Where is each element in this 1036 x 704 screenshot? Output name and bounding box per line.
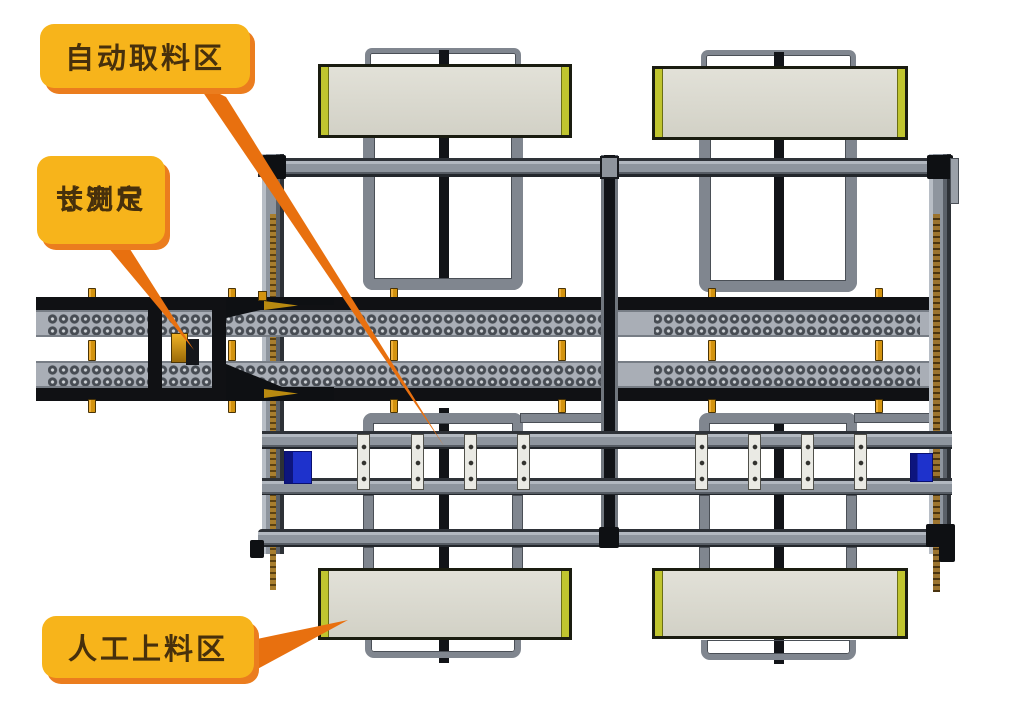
dimension-sensor-head: [186, 339, 199, 365]
belt-pin: [88, 340, 96, 361]
bottom-bracket-left: [365, 638, 521, 658]
top-window-frame-right: [699, 132, 857, 292]
top-panel-right: [652, 66, 908, 140]
panel-edge: [561, 571, 569, 637]
rail-cap: [262, 155, 286, 179]
measure-frame-bar: [212, 297, 226, 401]
callout-auto-pick-label: 自动取料区: [65, 35, 225, 77]
lower-tube: [846, 495, 857, 530]
gripper-frame-right: [699, 413, 857, 432]
belt-pin: [708, 399, 716, 413]
panel-tube: [363, 547, 374, 570]
belt-plain-segment: [36, 363, 48, 386]
belt-pin: [875, 399, 883, 413]
panel-tube: [512, 547, 523, 570]
rail-cap: [599, 527, 619, 548]
gripper-plate: [854, 434, 867, 490]
belt-plain-segment: [36, 312, 48, 335]
belt-pin: [228, 399, 236, 413]
bottom-bracket-right: [701, 640, 856, 660]
gripper-frame-right-ext: [854, 413, 931, 423]
belt-pin: [390, 340, 398, 361]
lower-tube: [699, 495, 710, 530]
belt-frame-top: [36, 297, 933, 310]
belt-pin: [228, 340, 236, 361]
belt-pin: [558, 340, 566, 361]
gripper-plate: [411, 434, 424, 490]
machine-diagram: 自动取料区 长宽尺 寸测定 人工上料区: [0, 0, 1036, 704]
lower-tube: [363, 495, 374, 530]
panel-edge: [897, 571, 905, 636]
top-panel-left: [318, 64, 572, 138]
callout-auto-pick-area: 自动取料区: [40, 24, 250, 88]
panel-edge: [321, 571, 329, 637]
conveyor-belt: [36, 288, 933, 414]
gripper-plate: [748, 434, 761, 490]
blue-actuator-left: [284, 451, 312, 484]
belt-plain-segment: [616, 312, 654, 335]
rail-cap-gold: [258, 291, 267, 301]
callout-manual-load-area: 人工上料区: [42, 616, 254, 678]
gripper-plate: [695, 434, 708, 490]
gripper-plate: [517, 434, 530, 490]
callout-manual-load-label: 人工上料区: [68, 626, 228, 668]
gripper-plate: [357, 434, 370, 490]
belt-pin: [390, 399, 398, 413]
gripper-plate: [801, 434, 814, 490]
belt-pin: [88, 399, 96, 413]
panel-edge: [561, 67, 569, 135]
blue-actuator-right: [910, 453, 933, 482]
belt-pin: [875, 340, 883, 361]
bottom-panel-right: [652, 568, 908, 639]
lower-tube: [512, 495, 523, 530]
panel-edge: [321, 67, 329, 135]
gripper-frame-left: [363, 413, 523, 432]
panel-edge: [897, 69, 905, 137]
panel-tube: [699, 547, 710, 570]
callout-dimension-label-line2: 寸测定: [56, 182, 146, 219]
rail-cap: [939, 524, 955, 562]
belt-pin: [558, 399, 566, 413]
callout-dimension-measure: 长宽尺 寸测定: [37, 156, 165, 244]
rail-cap: [250, 540, 264, 558]
measure-frame-bar: [148, 297, 162, 401]
belt-pin: [708, 340, 716, 361]
bottom-panel-left: [318, 568, 572, 640]
panel-edge: [655, 69, 663, 137]
rail-cap: [600, 156, 619, 179]
top-window-frame-left: [363, 130, 523, 290]
belt-frame-bottom: [36, 388, 933, 401]
belt-plain-segment: [616, 363, 654, 386]
gripper-plate: [464, 434, 477, 490]
panel-tube: [846, 547, 857, 570]
rail-stub: [950, 158, 959, 204]
belt-strip-lower: [36, 361, 933, 388]
panel-edge: [655, 571, 663, 636]
